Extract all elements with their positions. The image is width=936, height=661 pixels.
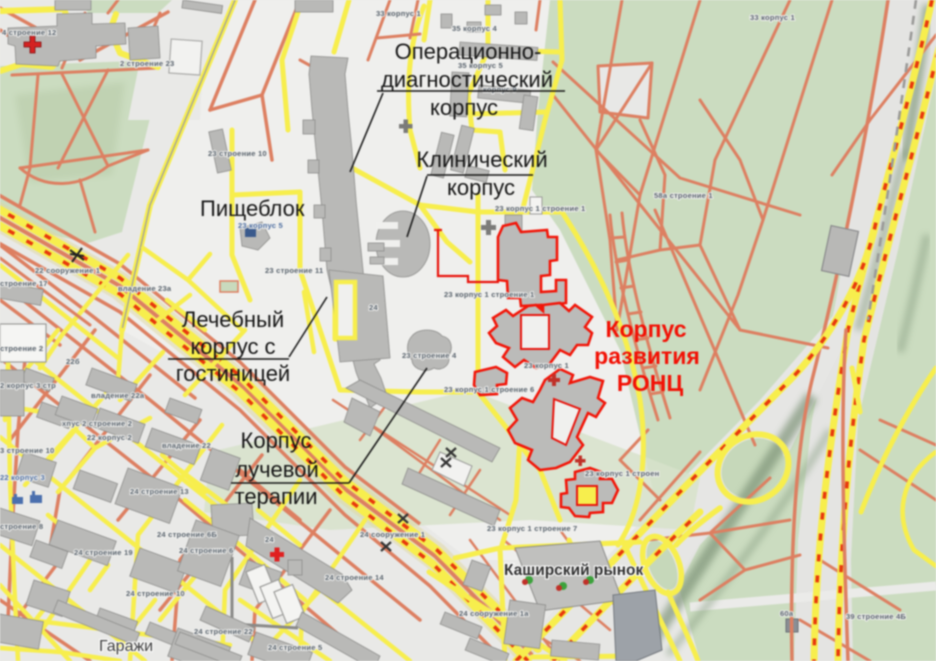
svg-text:24 строение 6: 24 строение 6 xyxy=(179,546,233,555)
svg-text:хпус 2 строение 2: хпус 2 строение 2 xyxy=(62,419,132,428)
svg-text:гостиницей: гостиницей xyxy=(176,361,290,386)
svg-text:23 корпус 1 строение 1: 23 корпус 1 строение 1 xyxy=(444,290,535,299)
svg-text:строение 17: строение 17 xyxy=(0,279,48,288)
svg-text:24 сооружение 1: 24 сооружение 1 xyxy=(360,530,426,539)
svg-text:22 корпус 3: 22 корпус 3 xyxy=(0,473,45,482)
svg-text:РОНЦ: РОНЦ xyxy=(617,370,684,396)
svg-text:Лечебный: Лечебный xyxy=(182,307,284,332)
svg-text:корпус с: корпус с xyxy=(190,334,275,359)
svg-text:Клинический: Клинический xyxy=(416,147,547,172)
svg-text:строение 8: строение 8 xyxy=(0,522,43,531)
svg-text:58а строение 1: 58а строение 1 xyxy=(654,191,713,200)
svg-text:Корпус: Корпус xyxy=(605,316,686,342)
svg-text:развития: развития xyxy=(594,343,700,369)
svg-text:24 строение 10: 24 строение 10 xyxy=(126,589,185,598)
svg-text:23 корпус 1 строение 1: 23 корпус 1 строение 1 xyxy=(495,204,586,213)
svg-text:39 строение 4Б: 39 строение 4Б xyxy=(846,612,906,621)
svg-text:2 строение 23: 2 строение 23 xyxy=(120,59,174,68)
svg-text:23 корпус 1 строение 7: 23 корпус 1 строение 7 xyxy=(487,524,577,533)
svg-text:24 строение 19: 24 строение 19 xyxy=(74,548,133,557)
svg-text:24 строение 6Б: 24 строение 6Б xyxy=(157,530,217,539)
svg-text:диагностический: диагностический xyxy=(381,67,553,92)
svg-text:60а: 60а xyxy=(780,609,794,618)
svg-text:23 корпус 1: 23 корпус 1 xyxy=(524,361,569,370)
svg-text:24: 24 xyxy=(369,303,378,312)
svg-text:Корпус: Корпус xyxy=(241,428,312,453)
svg-text:Пищеблок: Пищеблок xyxy=(200,196,305,221)
svg-text:владение 22а: владение 22а xyxy=(91,391,145,400)
svg-text:24 строение 14: 24 строение 14 xyxy=(325,573,384,582)
svg-text:22 корпус 2: 22 корпус 2 xyxy=(87,433,132,442)
svg-text:владение 22: владение 22 xyxy=(162,441,211,450)
svg-text:33 корпус 1: 33 корпус 1 xyxy=(376,9,421,18)
svg-text:33 корпус 1: 33 корпус 1 xyxy=(750,13,795,22)
svg-text:23 строение 11: 23 строение 11 xyxy=(265,266,324,275)
svg-text:лучевой: лучевой xyxy=(235,457,319,482)
svg-text:23 корпус 1 строен: 23 корпус 1 строен xyxy=(585,469,660,478)
svg-text:24 строение 22: 24 строение 22 xyxy=(194,627,253,636)
svg-text:24 строение 5: 24 строение 5 xyxy=(268,643,323,652)
svg-text:Гаражи: Гаражи xyxy=(99,638,153,655)
svg-text:4 строение 12: 4 строение 12 xyxy=(2,28,56,37)
svg-text:24 сооружение 1а: 24 сооружение 1а xyxy=(459,609,529,618)
svg-text:2 корпус 3 стр: 2 корпус 3 стр xyxy=(0,381,56,390)
svg-text:24 строение 13: 24 строение 13 xyxy=(130,487,189,496)
svg-text:23 корпус 5: 23 корпус 5 xyxy=(238,221,283,230)
svg-text:23 строение 4: 23 строение 4 xyxy=(402,351,457,360)
svg-text:строение 2: строение 2 xyxy=(0,344,43,353)
svg-text:Операционно-: Операционно- xyxy=(395,39,542,64)
svg-text:терапии: терапии xyxy=(234,484,317,509)
svg-text:22 сооружение 1: 22 сооружение 1 xyxy=(35,266,101,275)
svg-text:22б: 22б xyxy=(66,357,80,366)
svg-text:24: 24 xyxy=(265,535,274,544)
svg-text:корпус: корпус xyxy=(447,175,515,200)
svg-text:23 корпус 1 строение 6: 23 корпус 1 строение 6 xyxy=(444,385,534,394)
svg-text:3 строение 10: 3 строение 10 xyxy=(0,446,54,455)
svg-text:владение 23а: владение 23а xyxy=(118,284,172,293)
svg-text:23 строение 10: 23 строение 10 xyxy=(208,149,267,158)
svg-text:35 корпус 4: 35 корпус 4 xyxy=(452,24,497,33)
svg-text:корпус: корпус xyxy=(430,95,498,120)
svg-text:Каширский рынок: Каширский рынок xyxy=(504,562,643,579)
